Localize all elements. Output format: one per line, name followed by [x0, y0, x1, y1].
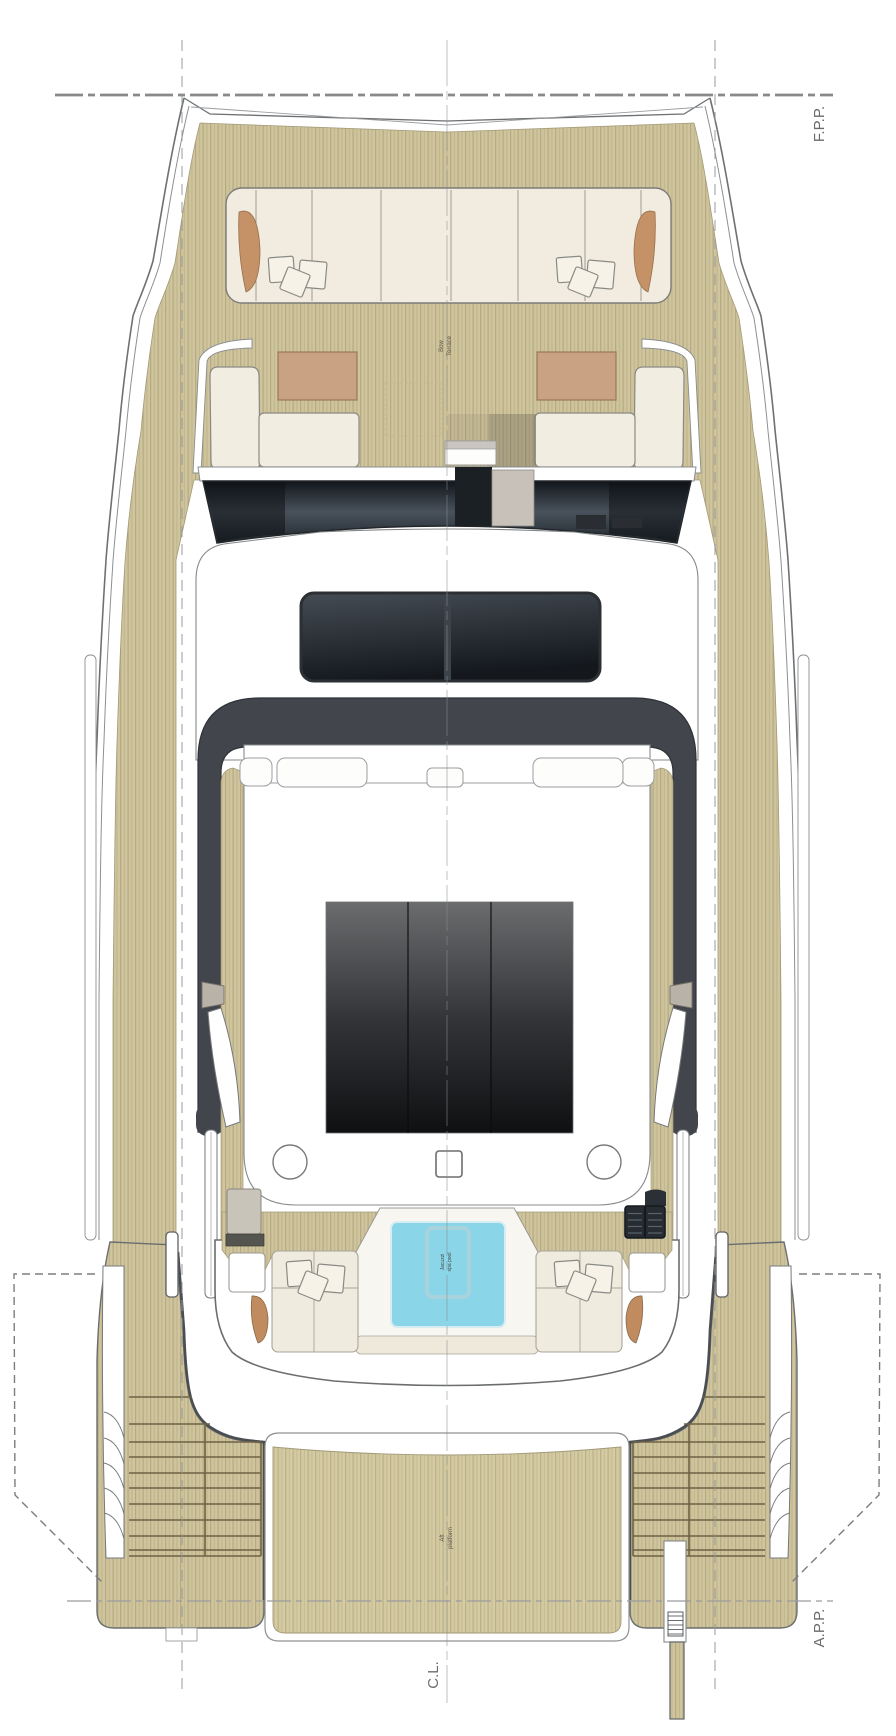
svg-text:spa pool: spa pool [447, 1253, 453, 1272]
svg-text:Bow: Bow [439, 339, 445, 351]
svg-text:platform: platform [448, 1527, 454, 1549]
svg-text:C.L.: C.L. [425, 1661, 442, 1689]
svg-text:Aft: Aft [440, 1534, 446, 1542]
svg-text:A.P.P.: A.P.P. [811, 1609, 828, 1648]
svg-text:Jacuzzi: Jacuzzi [440, 1254, 446, 1271]
svg-text:F.P.P.: F.P.P. [811, 106, 828, 142]
svg-text:Terrace: Terrace [447, 335, 453, 356]
